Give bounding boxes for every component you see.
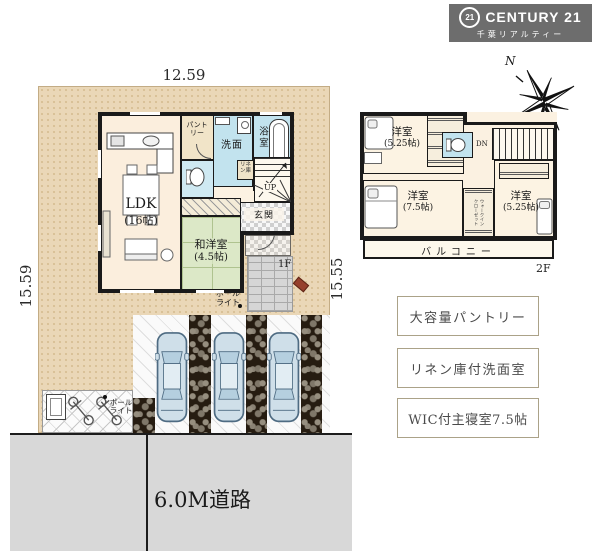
feature-label: WIC付主寝室7.5帖	[408, 409, 528, 428]
bedroom-left-name: 洋室	[408, 190, 429, 203]
closet	[499, 163, 549, 179]
toilet-icon	[446, 136, 468, 154]
seal-text: 21	[465, 13, 474, 22]
room-label-bedroom-left: 洋室 (7.5帖)	[390, 190, 446, 214]
wall	[554, 122, 557, 240]
tatami-size: (4.5帖)	[194, 252, 228, 265]
window	[98, 150, 101, 178]
cobblestone-strip	[246, 315, 267, 433]
wall	[360, 112, 467, 115]
sink-icon	[215, 117, 230, 125]
wall	[360, 112, 363, 240]
window	[120, 290, 154, 293]
dimension-right: 15.55	[328, 244, 346, 314]
bedroom-top-name: 洋室	[392, 126, 413, 139]
feature-label: 大容量パントリー	[410, 307, 527, 326]
washing-machine-icon	[237, 117, 251, 134]
entrance-label: 玄関	[244, 208, 284, 221]
room-label-ldk: LDK (16帖)	[102, 196, 180, 227]
window	[260, 112, 282, 115]
bathroom-label: 浴室	[255, 126, 269, 149]
pantry-label: パントリー	[183, 122, 211, 137]
bedroom-top-size: (5.25帖)	[384, 139, 420, 150]
cobblestone-strip	[301, 315, 322, 433]
room-label-bedroom-right: 洋室 (5.25帖)	[496, 190, 546, 214]
ldk-size: (16帖)	[124, 214, 158, 228]
brand-name: CENTURY 21	[485, 9, 581, 25]
compass-north-label: N	[505, 54, 516, 68]
desk-icon	[364, 152, 382, 164]
ldk-name: LDK	[126, 196, 157, 214]
wall	[241, 232, 294, 235]
bedroom-left-size: (7.5帖)	[403, 203, 433, 214]
wic-label: ウォークイン クローゼット	[469, 196, 487, 228]
stairs-up-label: UP	[263, 183, 277, 192]
feature-box-linen: リネン庫付洗面室	[397, 348, 539, 388]
wall	[291, 112, 294, 235]
window	[98, 225, 101, 251]
road-label: 6.0M道路	[130, 484, 275, 514]
floor1-tag: 1F	[278, 259, 291, 270]
stairs-fan-icon	[254, 157, 291, 202]
balcony-label: バルコニー	[363, 243, 554, 258]
closet-oshiire	[181, 198, 241, 216]
stairs-down-label: DN	[476, 140, 488, 148]
closet-pipe-mark	[465, 229, 492, 236]
feature-label: リネン庫付洗面室	[410, 359, 526, 378]
pole-light-label: ポール ライト	[104, 399, 138, 416]
closet-pipe-mark	[465, 189, 492, 196]
dimension-left: 15.59	[17, 251, 35, 321]
wall	[464, 122, 557, 125]
window	[130, 112, 160, 115]
car-icon	[155, 328, 189, 428]
window	[196, 290, 224, 293]
car-icon	[212, 328, 246, 428]
tatami-name: 和洋室	[195, 238, 228, 252]
century21-logo: 21 CENTURY 21 千葉リアルティー	[449, 4, 592, 42]
dimension-top: 12.59	[139, 66, 229, 84]
feature-box-pantry: 大容量パントリー	[397, 296, 539, 336]
washroom-label: 洗面	[213, 136, 251, 151]
brand-subtitle: 千葉リアルティー	[477, 29, 564, 40]
room-label-bedroom-top: 洋室 (5.25帖)	[374, 126, 430, 150]
century21-seal-icon: 21	[459, 7, 480, 28]
floorplan-page: 21 CENTURY 21 千葉リアルティー N 12.59 15.59 15.…	[0, 0, 600, 557]
floor2-tag: 2F	[536, 262, 551, 275]
car-icon	[267, 328, 301, 428]
bedroom-right-size: (5.25帖)	[503, 203, 539, 214]
room-label-tatami: 和洋室 (4.5帖)	[181, 238, 241, 264]
cobblestone-strip	[189, 315, 211, 433]
feature-box-wic: WIC付主寝室7.5帖	[397, 398, 539, 438]
toilet-icon	[186, 165, 206, 189]
bedroom-right-name: 洋室	[511, 190, 532, 203]
linen-closet-label: リネン庫	[238, 162, 253, 174]
stairs-2f	[492, 128, 554, 160]
wall	[98, 112, 101, 293]
wall	[241, 232, 244, 293]
pole-light-dot	[238, 304, 242, 308]
